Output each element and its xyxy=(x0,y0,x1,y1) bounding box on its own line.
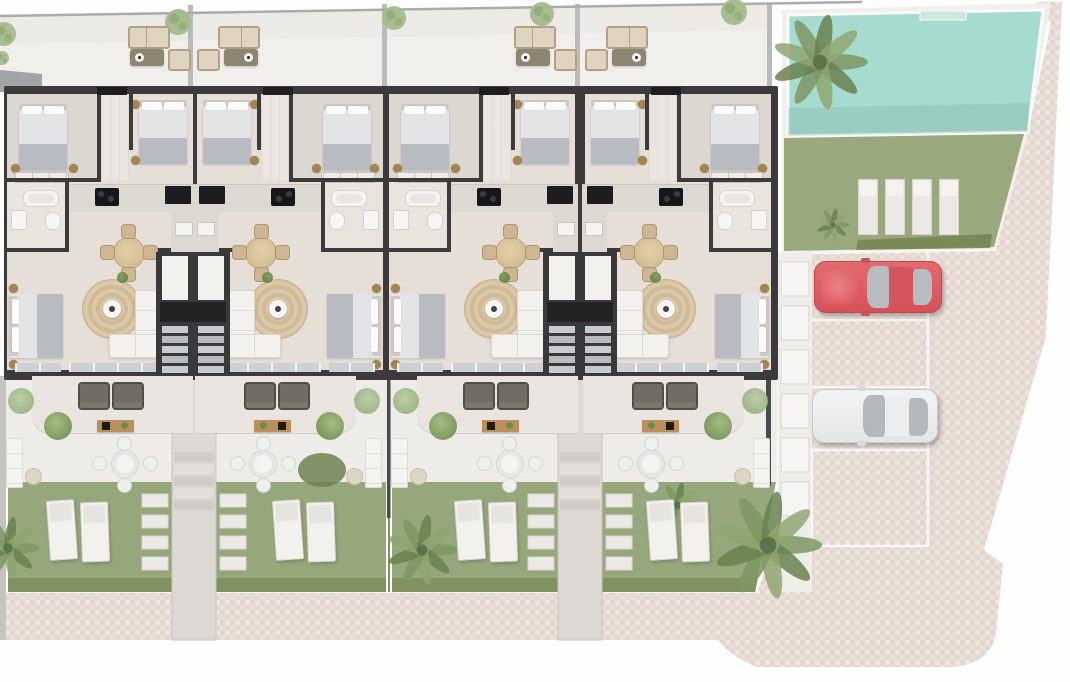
stepping-stone xyxy=(528,494,554,507)
car-roof xyxy=(885,396,909,436)
blanket xyxy=(419,294,445,358)
dark-armchair xyxy=(497,382,529,410)
bedside-stool xyxy=(9,284,18,293)
floor-plan xyxy=(0,0,1070,682)
red-car xyxy=(814,261,942,313)
outdoor-armchair xyxy=(554,49,577,71)
wall xyxy=(321,182,325,252)
wall xyxy=(389,248,451,252)
stair-tread xyxy=(162,346,188,353)
bedside-stool xyxy=(372,284,381,293)
dark-armchair xyxy=(244,382,276,410)
pool-ladder xyxy=(920,11,966,20)
kitchen-appliance xyxy=(587,186,613,204)
pillow xyxy=(371,299,378,324)
bedside-stool xyxy=(760,284,769,293)
bedside-stool xyxy=(312,164,321,173)
outdoor-sofa xyxy=(606,26,648,49)
pillow xyxy=(348,106,368,114)
wall xyxy=(479,94,483,182)
dining-chair xyxy=(525,245,540,260)
strip-cell xyxy=(781,438,809,472)
ground-terrace-set xyxy=(195,380,384,482)
blanket xyxy=(139,138,187,164)
pillow xyxy=(736,106,756,114)
dining-table xyxy=(495,237,527,269)
toilet xyxy=(45,212,61,230)
sun-lounger xyxy=(80,502,110,563)
pool-lounger xyxy=(858,179,878,235)
pillow xyxy=(759,327,766,352)
sun-lounger xyxy=(646,499,678,561)
patio-chair xyxy=(618,456,633,471)
sliding-glass-door xyxy=(717,363,763,372)
sun-lounger xyxy=(46,499,78,561)
dark-armchair xyxy=(112,382,144,410)
car-windshield xyxy=(867,266,889,308)
stair-tread xyxy=(549,346,575,353)
stair-tread xyxy=(585,336,611,343)
pillow xyxy=(524,102,544,110)
bathroom-sink xyxy=(751,210,767,230)
kitchen-appliance xyxy=(199,186,225,204)
bathtub xyxy=(405,190,441,207)
strip-cell xyxy=(781,306,809,340)
stair-core xyxy=(156,252,230,378)
pouf xyxy=(346,468,363,485)
closet-strip xyxy=(483,94,511,180)
strip-cell xyxy=(781,482,809,516)
patio-chair xyxy=(669,456,684,471)
patio-chair xyxy=(256,436,271,451)
garden-lounger-pair xyxy=(648,500,712,562)
pool-lounger xyxy=(912,179,932,235)
sun-lounger xyxy=(272,499,304,561)
sliding-glass-door xyxy=(15,363,61,372)
car-windshield xyxy=(863,395,885,437)
stair-tread xyxy=(549,366,575,373)
outdoor-sofa xyxy=(514,26,556,49)
wall xyxy=(709,182,713,252)
cooktop xyxy=(95,188,119,206)
wall xyxy=(511,94,515,150)
pillow xyxy=(12,299,19,324)
blanket xyxy=(711,144,759,170)
patio-chair xyxy=(281,456,296,471)
cooktop xyxy=(271,188,295,206)
stepping-stone xyxy=(606,557,632,570)
entry-door-opening xyxy=(479,87,509,95)
entry-door-opening xyxy=(97,87,127,95)
stair-tread xyxy=(162,326,188,333)
bedside-stool xyxy=(451,164,460,173)
sliding-glass-door xyxy=(617,363,709,372)
bush xyxy=(429,412,457,440)
small-tree xyxy=(742,388,768,414)
pillow xyxy=(546,102,566,110)
corner-sofa xyxy=(753,438,770,488)
plant xyxy=(650,272,661,283)
outdoor-armchair xyxy=(197,49,220,71)
coffee-table xyxy=(103,300,121,318)
car-mirror xyxy=(857,441,866,446)
sun-lounger xyxy=(454,499,486,561)
console-table xyxy=(642,420,679,432)
stair-tread xyxy=(585,346,611,353)
patio-chair xyxy=(528,456,543,471)
sliding-glass-door xyxy=(329,363,375,372)
bush xyxy=(704,412,732,440)
kitchen-sink xyxy=(557,222,575,236)
ground-terrace-set xyxy=(389,380,578,482)
bedside-stool xyxy=(391,284,400,293)
car-mirror xyxy=(857,386,866,391)
blanket xyxy=(37,294,63,358)
blanket xyxy=(323,144,371,170)
closet-strip xyxy=(101,94,129,180)
stair-tread xyxy=(162,356,188,363)
bathtub xyxy=(719,190,755,207)
ground-terrace-set xyxy=(4,380,193,482)
stair-tread xyxy=(198,326,224,333)
bedside-stool xyxy=(513,156,522,165)
pool-shading xyxy=(788,103,1029,136)
stair-tread xyxy=(585,356,611,363)
patio-chair xyxy=(117,478,132,493)
sliding-glass-door xyxy=(451,363,543,372)
plant xyxy=(262,272,273,283)
strip-cell xyxy=(781,394,809,428)
dining-chair xyxy=(663,245,678,260)
pillow xyxy=(12,327,19,352)
wall xyxy=(129,94,133,150)
corner-sofa xyxy=(6,438,23,488)
stepping-stone xyxy=(142,515,168,528)
closet-strip xyxy=(649,94,677,180)
wall xyxy=(321,248,383,252)
dining-chair xyxy=(121,224,136,239)
sun-lounger xyxy=(680,502,710,563)
stepping-stone xyxy=(142,494,168,507)
outdoor-coffee-table xyxy=(130,49,164,66)
outdoor-armchair xyxy=(585,49,608,71)
sliding-glass-door xyxy=(69,363,161,372)
kitchen-sink xyxy=(197,222,215,236)
wall xyxy=(289,94,293,182)
sofa-chaise xyxy=(615,334,669,358)
bedside-stool xyxy=(250,156,259,165)
dark-armchair xyxy=(666,382,698,410)
sliding-glass-door xyxy=(397,363,443,372)
plant xyxy=(499,272,510,283)
blanket xyxy=(327,294,353,358)
entry-door-opening xyxy=(263,87,293,95)
dark-armchair xyxy=(78,382,110,410)
bush xyxy=(316,412,344,440)
corner-sofa xyxy=(365,438,382,488)
stepping-stone xyxy=(220,557,246,570)
wall xyxy=(645,94,649,150)
stair-tread xyxy=(198,366,224,373)
sofa-chaise xyxy=(227,334,281,358)
stepping-stone xyxy=(528,557,554,570)
ground-terrace-set xyxy=(583,380,772,482)
pillow xyxy=(759,299,766,324)
stepping-stone xyxy=(606,536,632,549)
toilet xyxy=(717,212,733,230)
pouf xyxy=(734,468,751,485)
stepping-stone xyxy=(220,515,246,528)
stair-tread xyxy=(198,336,224,343)
pillow xyxy=(394,299,401,324)
outdoor-coffee-table xyxy=(224,49,258,66)
stepping-stone xyxy=(528,536,554,549)
patio-chair xyxy=(502,478,517,493)
wall xyxy=(257,94,261,150)
patio-dining-table xyxy=(111,450,139,478)
dining-chair xyxy=(100,245,115,260)
patio-chair xyxy=(92,456,107,471)
sun-lounger xyxy=(306,502,336,563)
dining-table xyxy=(113,237,145,269)
stair-tread xyxy=(162,366,188,373)
pillow xyxy=(228,102,248,110)
bedside-stool xyxy=(131,156,140,165)
stair-tread xyxy=(585,366,611,373)
car-mirror xyxy=(861,258,870,263)
terrace-lounge-set xyxy=(586,22,656,72)
console-table xyxy=(482,420,519,432)
bathtub xyxy=(23,190,59,207)
pillow xyxy=(142,102,162,110)
garden-lounger-pair xyxy=(456,500,520,562)
closet-strip xyxy=(261,94,289,180)
stair-tread xyxy=(585,326,611,333)
terrace-divider xyxy=(382,4,387,88)
blanket xyxy=(19,144,67,170)
outdoor-armchair xyxy=(168,49,191,71)
cooktop xyxy=(477,188,501,206)
bathroom-sink xyxy=(393,210,409,230)
stair-core xyxy=(543,252,617,378)
patio-chair xyxy=(502,436,517,451)
pillow xyxy=(164,102,184,110)
small-tree xyxy=(354,388,380,414)
toilet xyxy=(329,212,345,230)
garden-lounger-pair xyxy=(274,500,338,562)
wall xyxy=(677,178,771,182)
patio-chair xyxy=(117,436,132,451)
dark-armchair xyxy=(463,382,495,410)
coffee-table xyxy=(269,300,287,318)
pool-lounger xyxy=(939,179,959,235)
dining-chair xyxy=(275,245,290,260)
stair-tread xyxy=(549,356,575,363)
stepping-stone xyxy=(220,494,246,507)
terrace-lounge-set xyxy=(120,22,190,72)
patio-chair xyxy=(256,478,271,493)
stair-tread xyxy=(198,346,224,353)
stair-tread xyxy=(198,356,224,363)
car-mirror xyxy=(861,311,870,316)
pillow xyxy=(404,106,424,114)
bedside-stool xyxy=(700,164,709,173)
sidewalk xyxy=(0,592,760,640)
terrace-divider xyxy=(767,3,772,88)
dining-chair xyxy=(620,245,635,260)
strip-cell xyxy=(781,262,809,296)
dining-chair xyxy=(642,224,657,239)
kitchen-appliance xyxy=(165,186,191,204)
car-rear-window xyxy=(913,269,932,305)
stepping-stone xyxy=(606,494,632,507)
stepping-stone xyxy=(220,536,246,549)
dining-chair xyxy=(232,245,247,260)
patio-chair xyxy=(644,436,659,451)
wall xyxy=(97,94,101,182)
blanket xyxy=(591,138,639,164)
pillow xyxy=(394,327,401,352)
dark-armchair xyxy=(632,382,664,410)
patio-chair xyxy=(644,478,659,493)
pillow xyxy=(22,106,42,114)
pouf xyxy=(25,468,42,485)
pillow xyxy=(714,106,734,114)
stair-tread xyxy=(549,336,575,343)
wall xyxy=(389,178,483,182)
outdoor-coffee-table xyxy=(516,49,550,66)
small-tree xyxy=(393,388,419,414)
patio-dining-table xyxy=(249,450,277,478)
garden-hedges xyxy=(8,578,758,592)
console-table xyxy=(254,420,291,432)
sun-lounger xyxy=(488,502,518,563)
pouf xyxy=(410,468,427,485)
corner-sofa xyxy=(391,438,408,488)
wall xyxy=(7,248,69,252)
sofa-chaise xyxy=(109,334,163,358)
entry-door-opening xyxy=(651,87,681,95)
dining-table xyxy=(245,237,277,269)
blanket xyxy=(203,138,251,164)
plant xyxy=(117,272,128,283)
stair-tread xyxy=(162,336,188,343)
garden-lounger-pair xyxy=(48,500,112,562)
pillow xyxy=(206,102,226,110)
car-rear-window xyxy=(909,398,928,436)
dining-table xyxy=(633,237,665,269)
white-car xyxy=(812,389,938,443)
wall xyxy=(7,178,101,182)
bedside-stool xyxy=(638,156,647,165)
patio-chair xyxy=(230,456,245,471)
stepping-stone xyxy=(142,536,168,549)
console-table xyxy=(97,420,134,432)
dining-chair xyxy=(482,245,497,260)
walkway-step xyxy=(560,488,600,498)
dining-chair xyxy=(254,224,269,239)
strip-cell xyxy=(781,350,809,384)
blanket xyxy=(715,294,741,358)
stepping-stone xyxy=(142,557,168,570)
sofa-chaise xyxy=(491,334,545,358)
terrace-lounge-set xyxy=(198,22,268,72)
patio-dining-table xyxy=(637,450,665,478)
pillow xyxy=(594,102,614,110)
bush xyxy=(44,412,72,440)
blanket xyxy=(521,138,569,164)
stepping-stone xyxy=(606,515,632,528)
bathtub xyxy=(331,190,367,207)
car-roof xyxy=(889,267,913,307)
blanket xyxy=(401,144,449,170)
patio-chair xyxy=(477,456,492,471)
walkway-step xyxy=(174,488,214,498)
bedside-stool xyxy=(69,164,78,173)
walkway-step xyxy=(174,500,214,510)
walkway-step xyxy=(560,500,600,510)
terrace-lounge-set xyxy=(506,22,576,72)
patio-chair xyxy=(143,456,158,471)
stepping-stone xyxy=(528,515,554,528)
wall xyxy=(677,94,681,182)
outdoor-coffee-table xyxy=(612,49,646,66)
dark-armchair xyxy=(278,382,310,410)
pillow xyxy=(426,106,446,114)
cooktop xyxy=(659,188,683,206)
pool-lounger xyxy=(885,179,905,235)
coffee-table xyxy=(485,300,503,318)
small-tree xyxy=(8,388,34,414)
coffee-table xyxy=(657,300,675,318)
kitchen-appliance xyxy=(547,186,573,204)
patio-dining-table xyxy=(496,450,524,478)
sliding-glass-door xyxy=(229,363,321,372)
stair-tread xyxy=(549,326,575,333)
kitchen-sink xyxy=(175,222,193,236)
car-hood xyxy=(821,268,863,306)
outdoor-sofa xyxy=(218,26,260,49)
outdoor-sofa xyxy=(128,26,170,49)
pillow xyxy=(326,106,346,114)
wall xyxy=(709,248,771,252)
wall xyxy=(289,178,383,182)
kitchen-sink xyxy=(585,222,603,236)
bathroom-sink xyxy=(363,210,379,230)
pillow xyxy=(44,106,64,114)
pillow xyxy=(371,327,378,352)
dining-chair xyxy=(503,224,518,239)
toilet xyxy=(427,212,443,230)
bathroom-sink xyxy=(11,210,27,230)
pillow xyxy=(616,102,636,110)
